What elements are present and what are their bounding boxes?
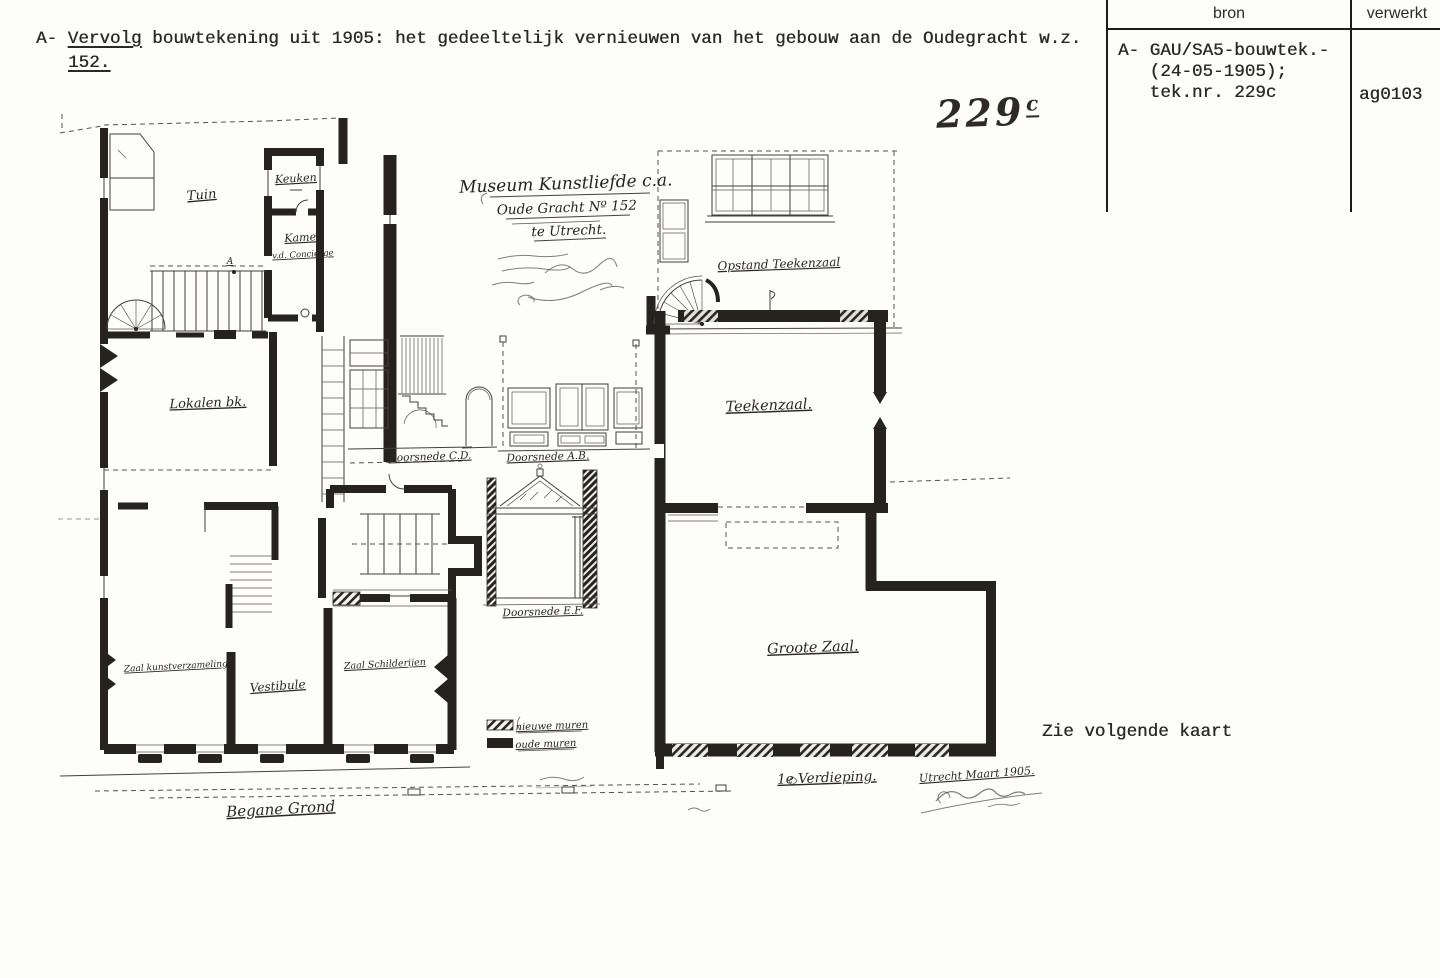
reference-table: bron verwerkt A- GAU/SA5-bouwtek.- (24-0… <box>1106 0 1440 212</box>
section-cd-drawing <box>348 336 497 463</box>
room-label-vestibule: Vestibule <box>249 677 306 695</box>
room-label-kunstverzameling: Zaal kunstverzameling <box>123 659 229 674</box>
column-header-bron: bron <box>1108 0 1352 30</box>
date-label: Utrecht Maart 1905. <box>919 764 1035 785</box>
party-wall-corridor <box>322 336 344 502</box>
bron-line-2: (24-05-1905); <box>1118 62 1350 83</box>
scan-stray-marks <box>58 114 710 811</box>
plan-title-verdieping: 1e Verdieping. <box>777 768 877 787</box>
teekenzaal-elevation <box>652 151 902 334</box>
header-underlined-word: Vervolg <box>68 29 142 49</box>
street-facade-wall <box>104 745 454 763</box>
room-label-schilderijen: Zaal Schilderijen <box>343 657 426 672</box>
spiral-staircase <box>107 300 165 331</box>
stair-marker-a: A <box>226 257 234 267</box>
section-label-ab: Doorsnede A.B. <box>505 450 589 465</box>
section-ab-drawing <box>498 336 650 451</box>
scanned-archive-card: { "page": { "paper": "#fdfdfa", "ink": "… <box>0 0 1440 978</box>
room-label-keuken: Keuken <box>274 171 317 186</box>
legend-label-old-walls: oude muren <box>515 738 576 751</box>
room-label-kamer-sub: v.d. Concierge <box>272 248 334 261</box>
header-prefix: A- <box>36 29 57 49</box>
floor-plan-drawing: Museum Kunstliefde c.a. Oude Gracht Nº 1… <box>55 105 1045 845</box>
legend-swatch-new-walls <box>487 720 513 730</box>
section-label-ef: Doorsnede E.F. <box>501 605 583 620</box>
header-line2: 152. <box>68 51 1081 75</box>
middle-column <box>348 155 650 788</box>
next-card-note: Zie volgende kaart <box>1042 722 1232 742</box>
header-line1: bouwtekening uit 1905: het gedeeltelijk … <box>142 29 1082 49</box>
title-city: te Utrecht. <box>531 222 606 241</box>
teekenzaal-plan <box>654 310 1010 752</box>
groote-zaal-plan <box>655 508 996 769</box>
right-column <box>646 151 1042 813</box>
column-header-verwerkt: verwerkt <box>1352 0 1440 30</box>
room-label-groote-zaal: Groote Zaal. <box>767 638 859 657</box>
straight-staircase <box>150 266 266 331</box>
stair-hall <box>322 474 478 606</box>
verwerkt-cell: ag0103 <box>1352 30 1440 212</box>
room-label-kamer: Kamer <box>283 230 322 245</box>
bron-line-3: tek.nr. 229c <box>1118 83 1350 104</box>
elevation-label-opstand: Opstand Teekenzaal <box>717 255 840 273</box>
plan-title-begane-grond: Begane Grond <box>225 797 336 821</box>
bron-cell: A- GAU/SA5-bouwtek.- (24-05-1905); tek.n… <box>1108 30 1352 212</box>
legend-swatch-old-walls <box>487 738 513 748</box>
room-label-lokalen: Lokalen bk. <box>168 395 246 413</box>
description-header: A- Vervolg bouwtekening uit 1905: het ge… <box>36 27 1081 75</box>
plan-labels: Museum Kunstliefde c.a. Oude Gracht Nº 1… <box>123 170 1035 821</box>
service-stair-room <box>205 506 275 628</box>
room-label-teekenzaal: Teekenzaal. <box>725 396 812 415</box>
room-label-tuin: Tuin <box>186 187 217 205</box>
section-label-cd: Doorsnede C.D. <box>387 450 471 465</box>
section-ef-drawing <box>483 464 600 608</box>
bron-line-1: A- GAU/SA5-bouwtek.- <box>1118 41 1350 62</box>
